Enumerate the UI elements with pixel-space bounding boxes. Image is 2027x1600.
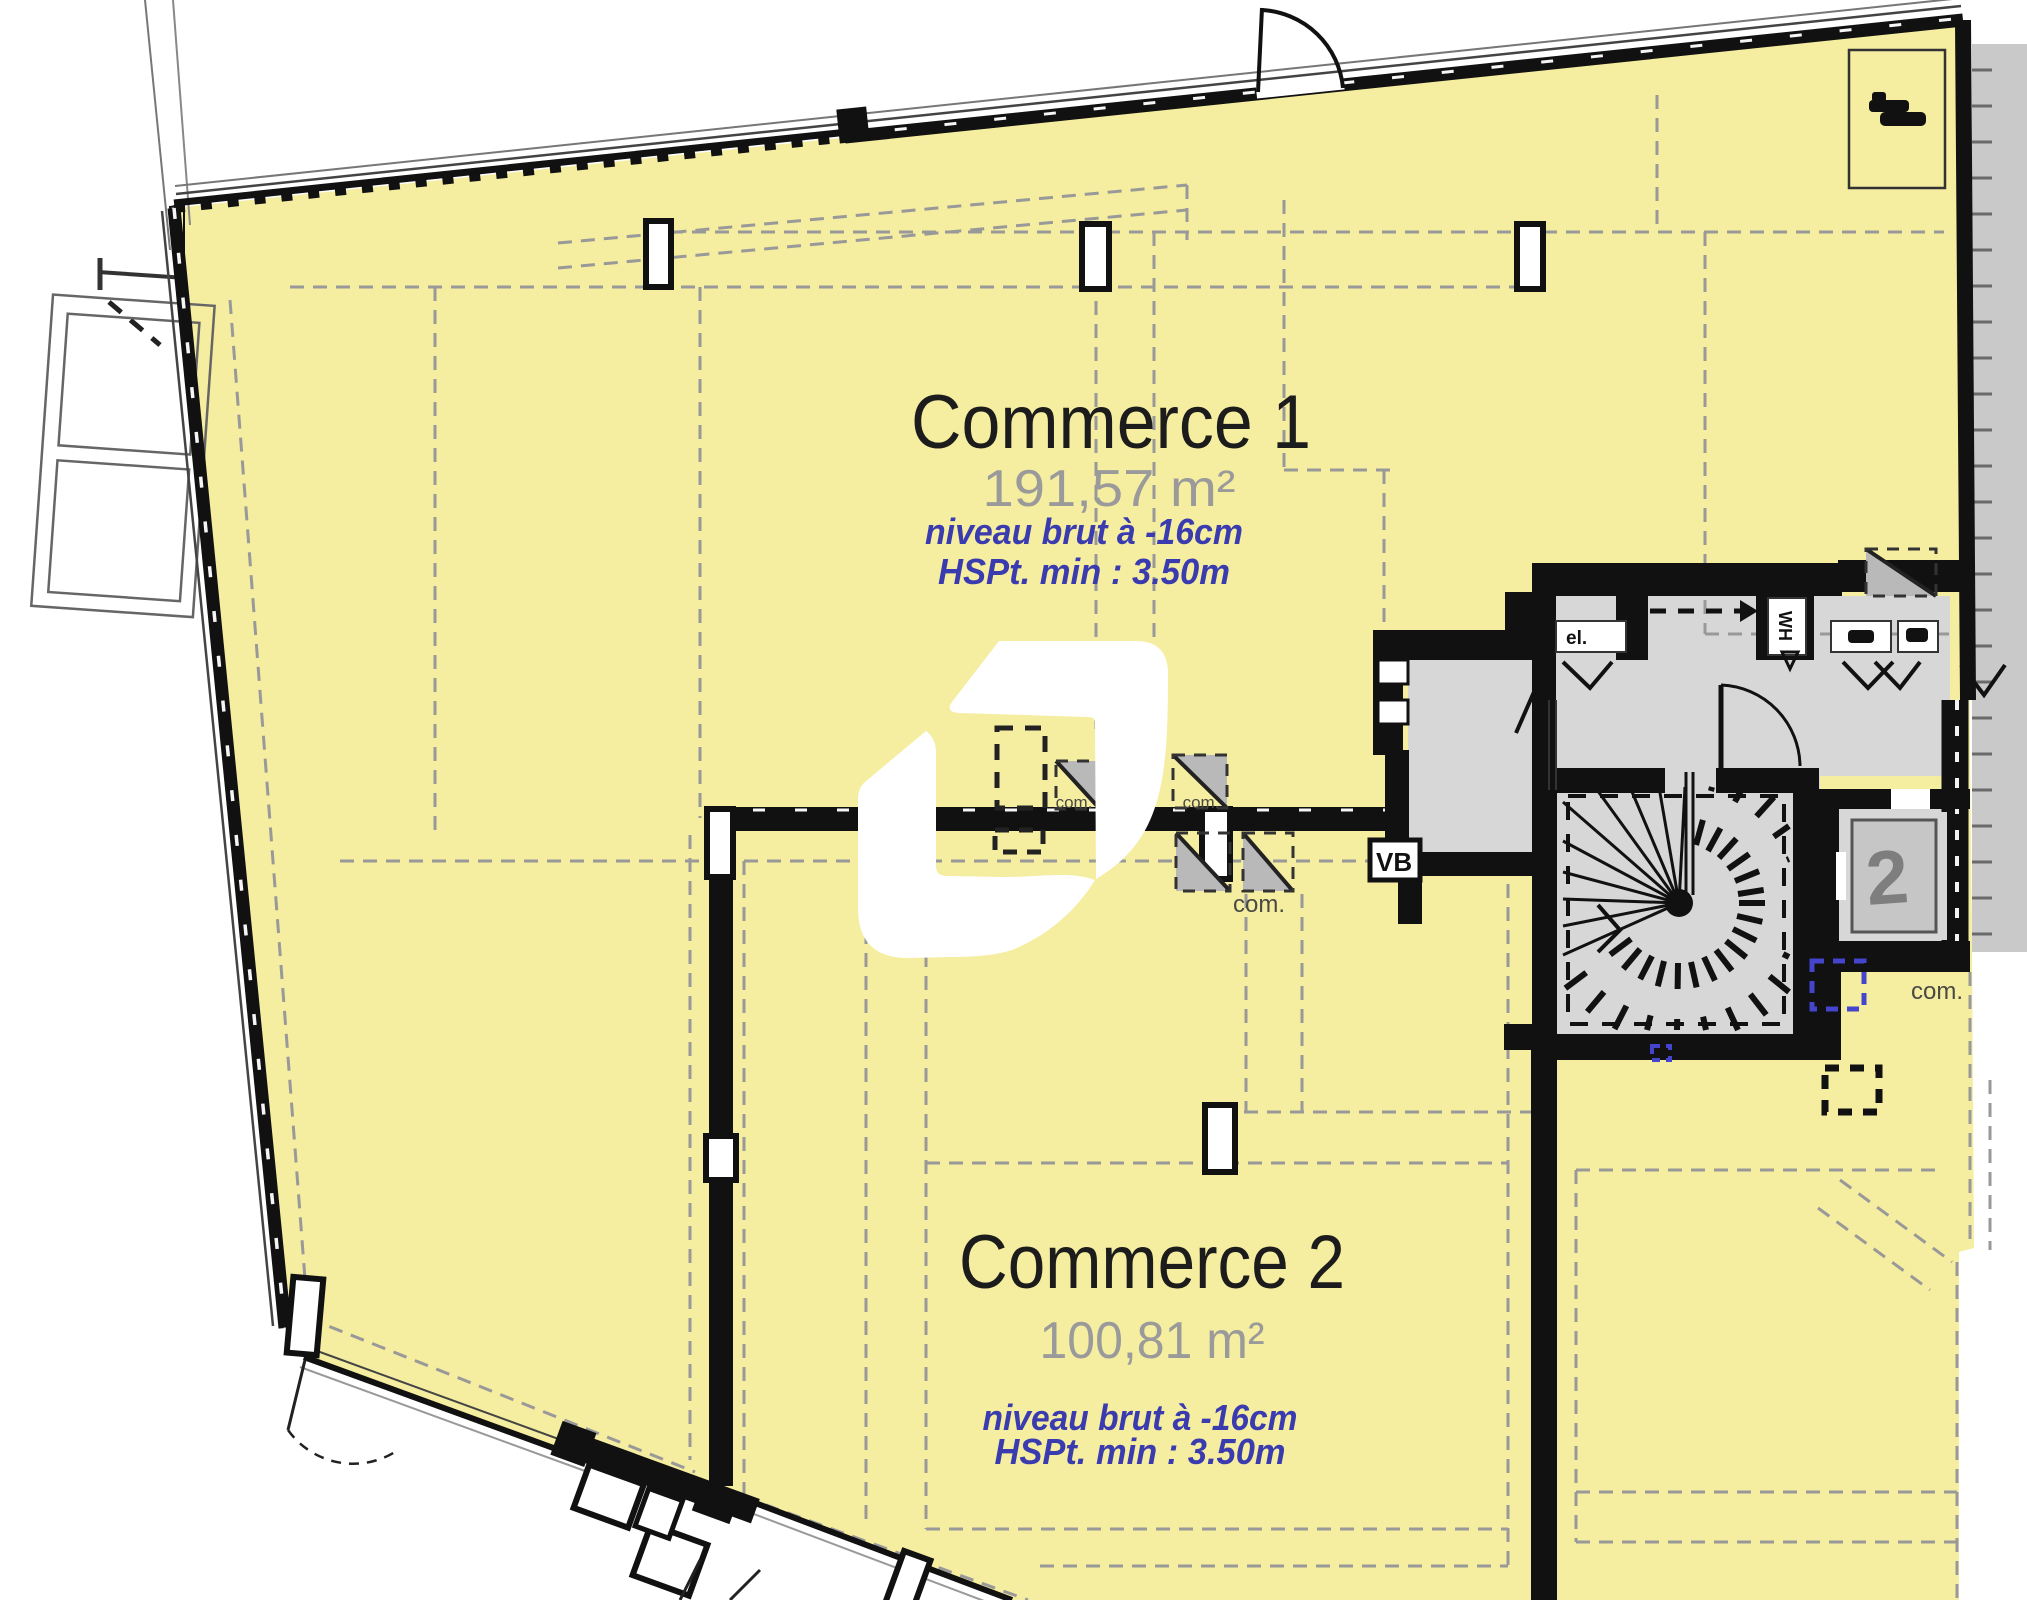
svg-text:el.: el. — [1566, 628, 1587, 649]
svg-text:HSPt. min : 3.50m: HSPt. min : 3.50m — [995, 1431, 1286, 1472]
svg-text:com.: com. — [1911, 978, 1963, 1005]
svg-text:VB: VB — [1376, 847, 1412, 877]
svg-text:WH: WH — [1775, 611, 1795, 641]
svg-text:com.: com. — [1183, 793, 1220, 812]
svg-text:Commerce 2: Commerce 2 — [959, 1220, 1345, 1305]
svg-text:HSPt. min : 3.50m: HSPt. min : 3.50m — [938, 551, 1230, 592]
svg-text:191,57 m²: 191,57 m² — [983, 460, 1236, 518]
svg-text:com.: com. — [1056, 793, 1093, 812]
svg-text:Commerce 1: Commerce 1 — [911, 380, 1311, 465]
svg-text:com.: com. — [1233, 891, 1285, 918]
svg-text:2: 2 — [1863, 834, 1911, 922]
svg-text:niveau brut à -16cm: niveau brut à -16cm — [925, 511, 1243, 552]
svg-text:100,81 m²: 100,81 m² — [1040, 1312, 1265, 1370]
